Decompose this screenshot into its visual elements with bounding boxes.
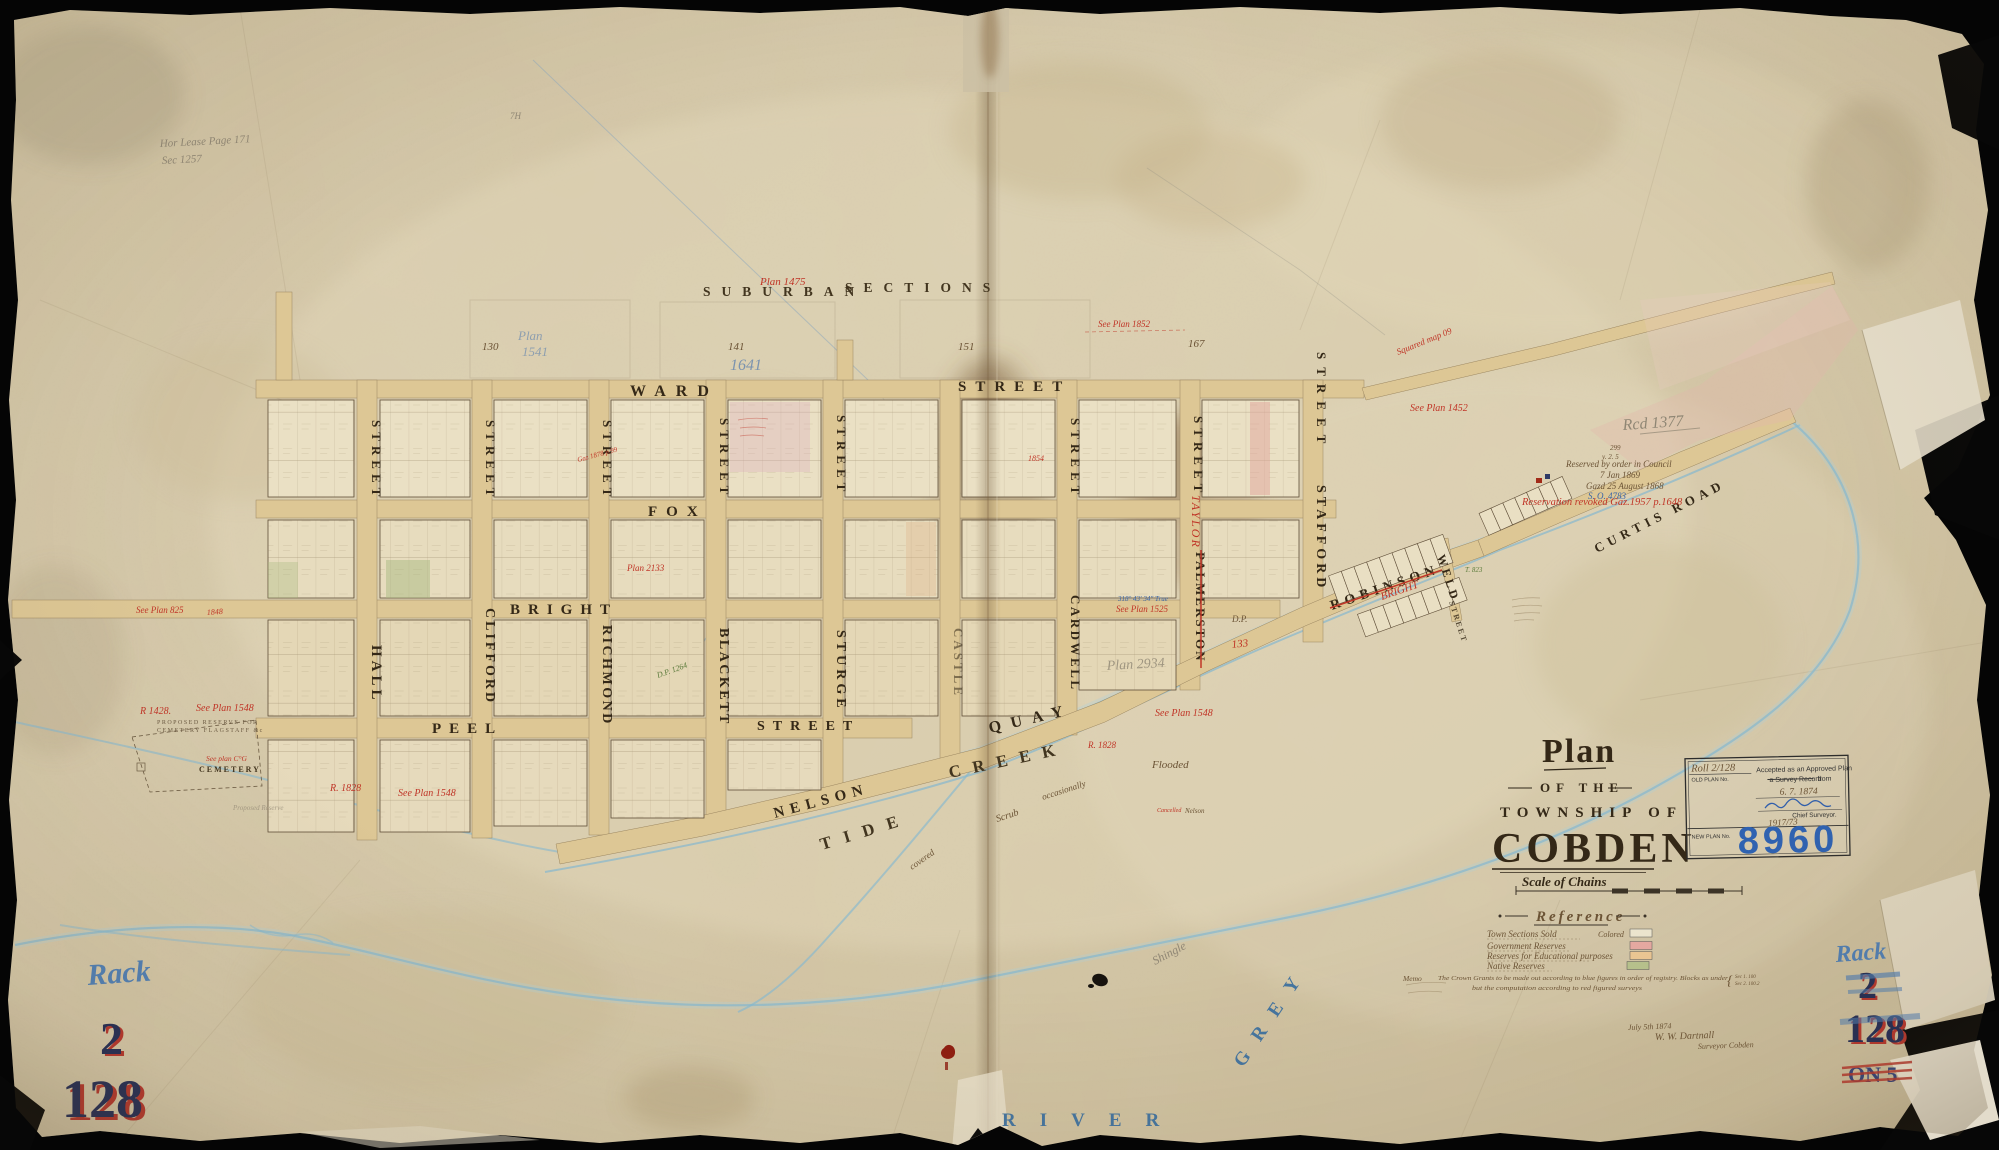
cobden-township-plan: WARD STREET FOX BRIGHT PEEL STREET NELSO… <box>0 0 1999 1150</box>
vignette <box>8 7 1992 1146</box>
photographed-map-backdrop: WARD STREET FOX BRIGHT PEEL STREET NELSO… <box>0 0 1999 1150</box>
